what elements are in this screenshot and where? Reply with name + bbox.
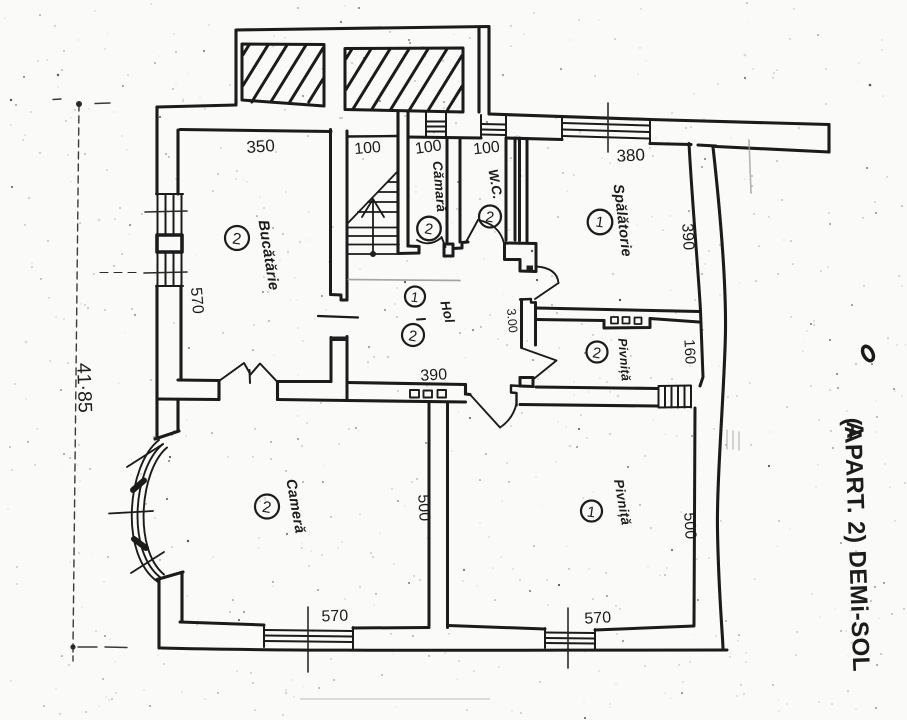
svg-text:500: 500: [414, 494, 432, 522]
svg-text:570: 570: [187, 287, 206, 315]
svg-text:A: A: [841, 421, 869, 439]
svg-text:570: 570: [584, 609, 612, 627]
svg-text:41·85: 41·85: [72, 362, 96, 413]
svg-text:380: 380: [616, 145, 645, 165]
svg-text:390: 390: [420, 366, 448, 384]
svg-text:350: 350: [246, 136, 276, 157]
svg-text:3.00: 3.00: [504, 308, 520, 334]
svg-text:570: 570: [321, 608, 348, 626]
svg-text:160: 160: [680, 339, 698, 365]
svg-text:100: 100: [472, 139, 500, 159]
svg-text:100: 100: [354, 139, 382, 158]
